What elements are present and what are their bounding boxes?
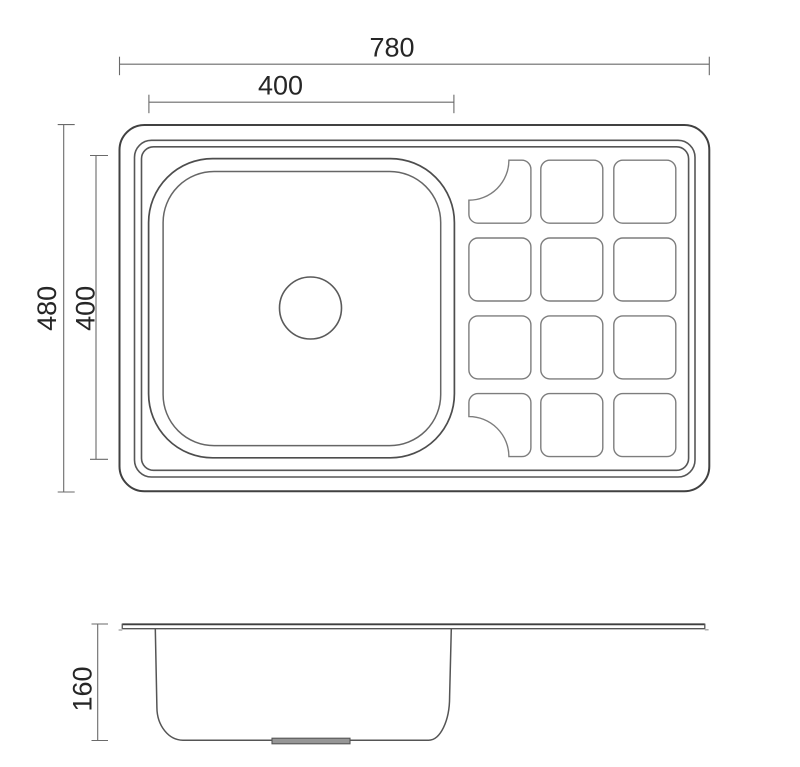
svg-text:160: 160 [68, 666, 98, 711]
svg-text:480: 480 [32, 286, 62, 331]
svg-text:400: 400 [70, 286, 100, 331]
svg-text:400: 400 [258, 71, 303, 101]
svg-text:780: 780 [369, 33, 414, 63]
